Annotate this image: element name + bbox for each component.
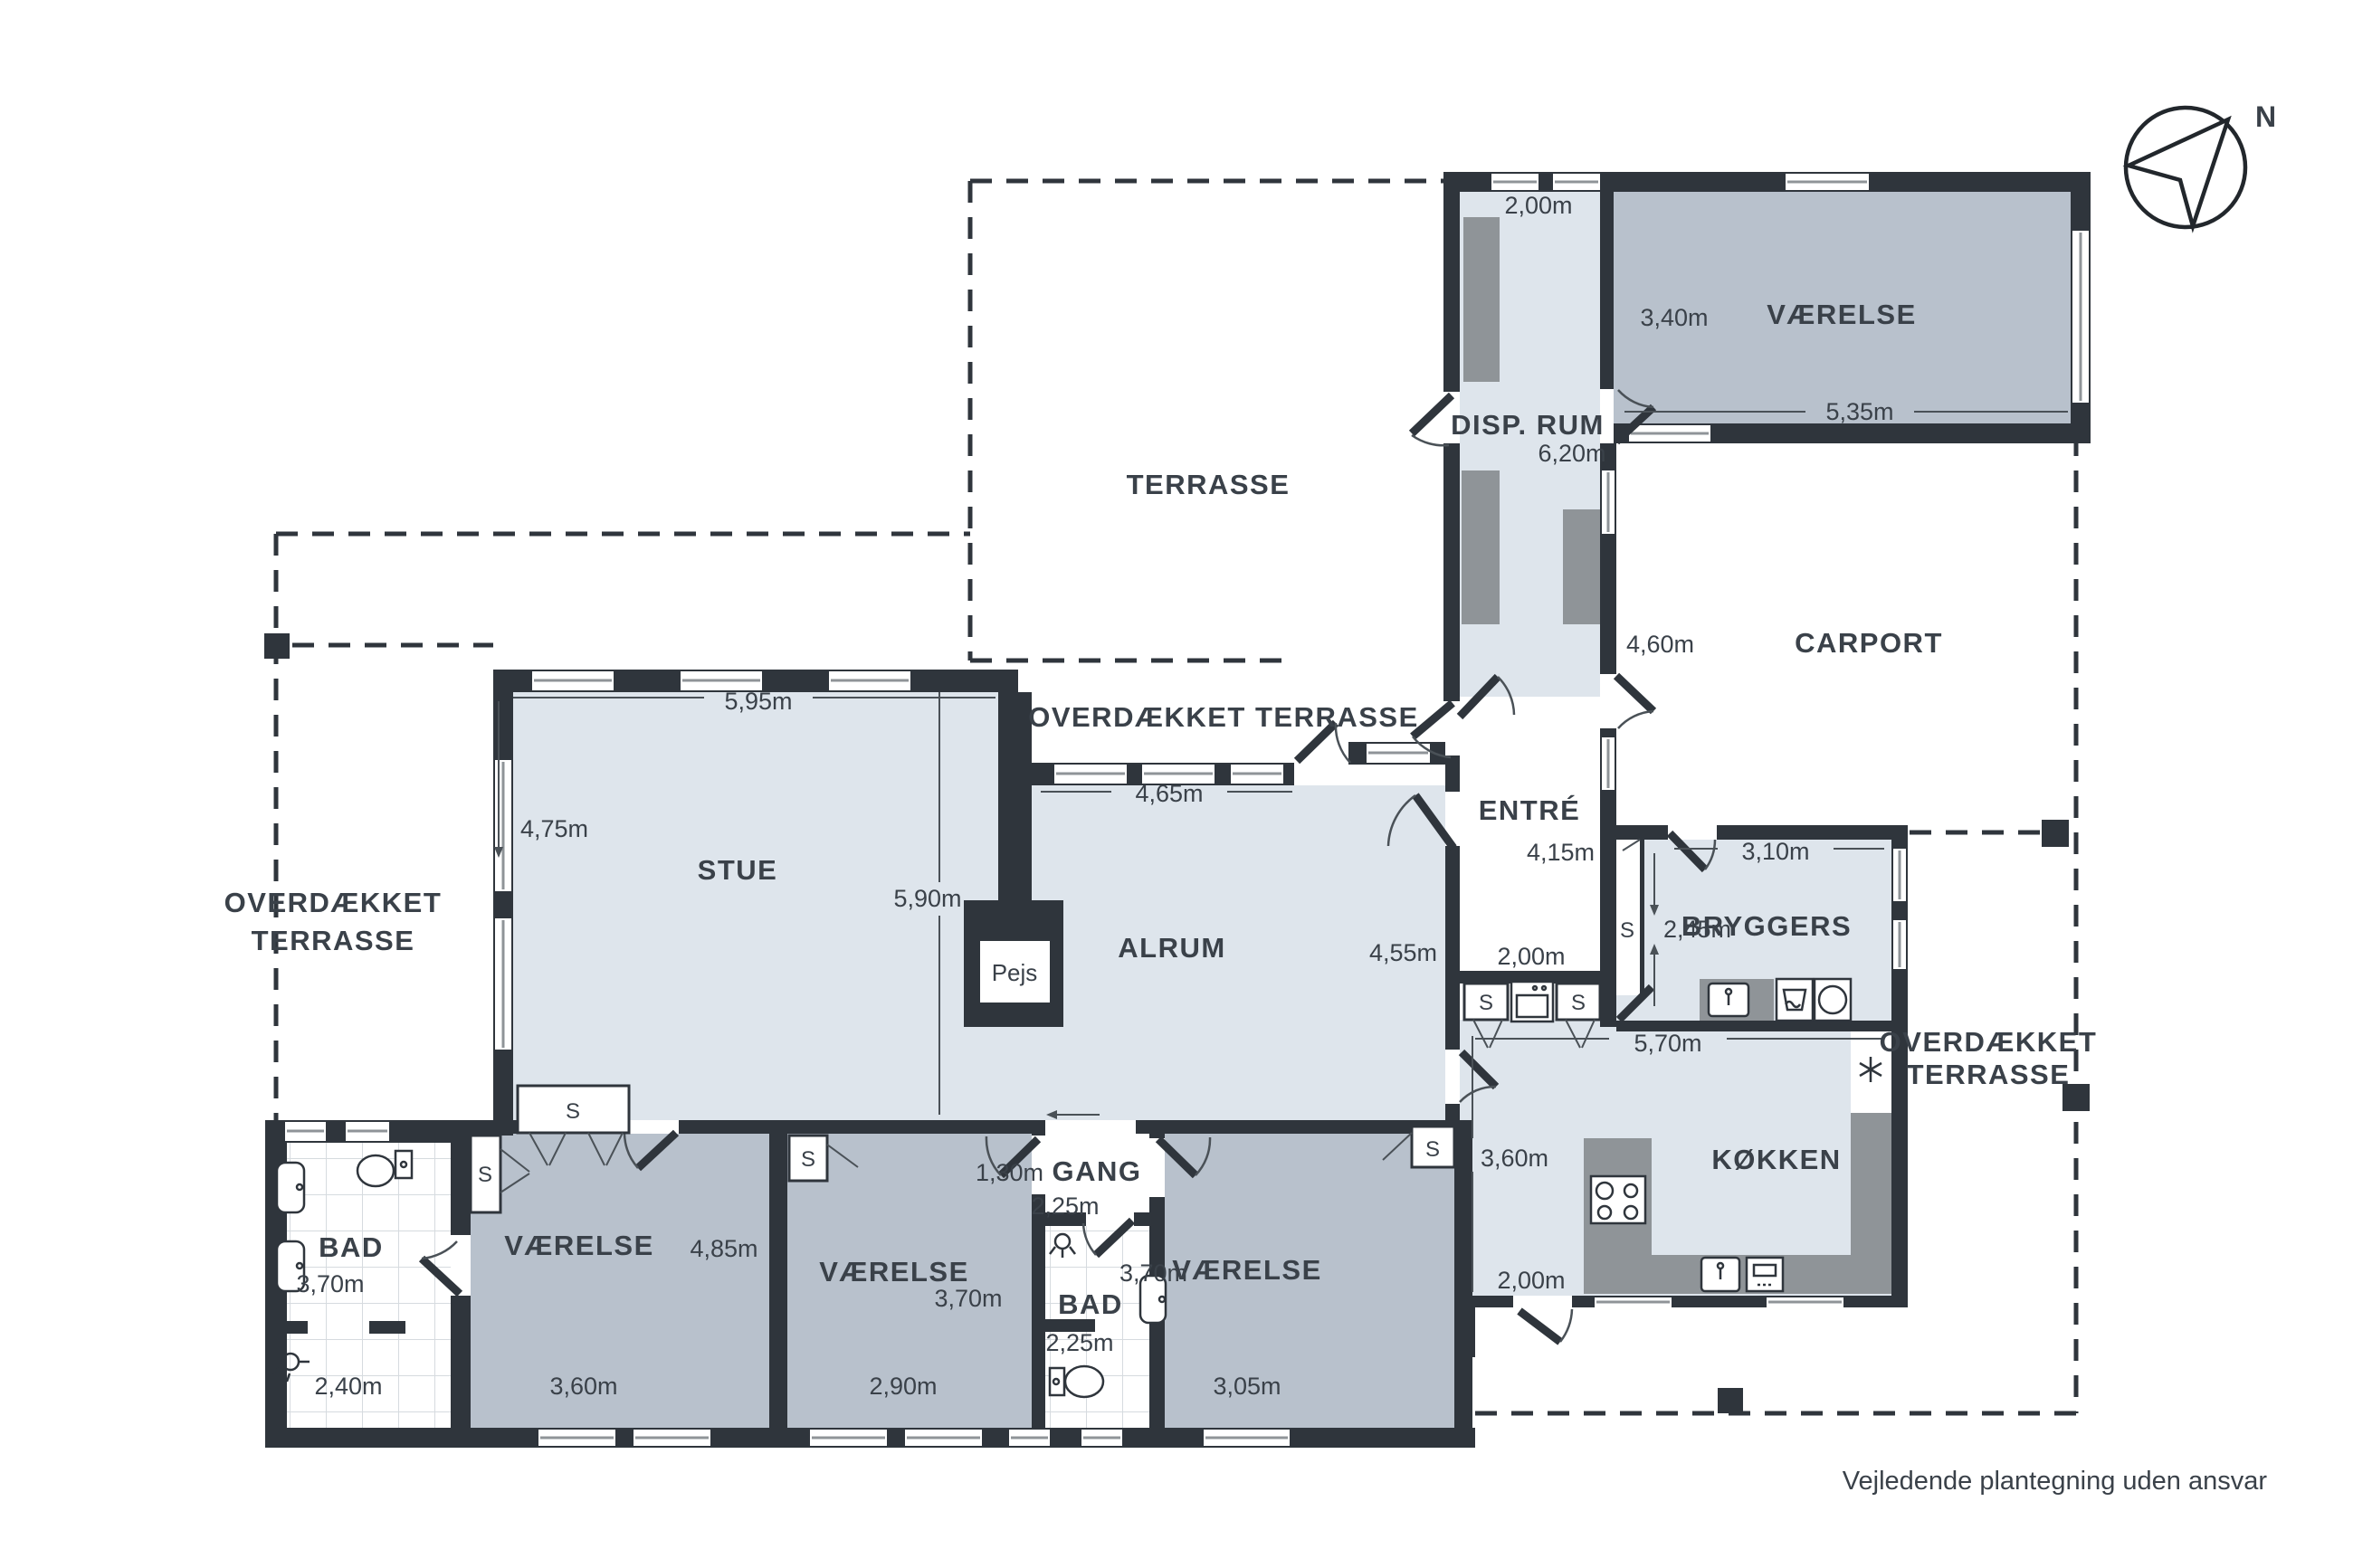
stue-depth: 4,75m <box>520 815 588 842</box>
bad-west-depth: 3,70m <box>296 1270 364 1297</box>
closet-s-v2: S <box>801 1147 815 1172</box>
bad-west-width: 2,40m <box>314 1373 382 1400</box>
dishwasher-icon <box>1747 1258 1783 1291</box>
compass-north-label: N <box>2255 100 2276 133</box>
disp-rum-length: 6,20m <box>1538 440 1605 467</box>
koekken-label: KØKKEN <box>1711 1144 1841 1175</box>
floor-plan-page: N TERRASSE CARPORT OVERDÆKKET TERRASSE O… <box>0 0 2353 1568</box>
vaerelse-sw-label: VÆRELSE <box>504 1230 654 1261</box>
covered-terrace-right-label-1: OVERDÆKKET <box>1880 1026 2098 1058</box>
gang-width: 1,30m <box>976 1159 1043 1186</box>
toilet-tank-icon <box>395 1151 412 1178</box>
vaerelse-mid-label: VÆRELSE <box>819 1256 969 1288</box>
terrasse-label: TERRASSE <box>1127 469 1291 500</box>
gang-depth: 2,25m <box>1031 1193 1099 1220</box>
koekken-depth: 3,60m <box>1481 1145 1548 1172</box>
disp-rum-label: DISP. RUM <box>1451 409 1605 441</box>
compass-rose-icon <box>2126 108 2245 227</box>
closet-s-bryggers: S <box>1620 918 1634 943</box>
entre-length: 4,15m <box>1527 839 1595 866</box>
disp-rum-width: 2,00m <box>1504 192 1572 219</box>
vaerelse-mid-depth: 3,70m <box>934 1285 1002 1312</box>
bryggers-width: 3,10m <box>1741 838 1809 865</box>
carport-label: CARPORT <box>1795 627 1943 659</box>
bad-west-label: BAD <box>319 1231 384 1263</box>
sink-icon <box>277 1163 304 1212</box>
closet-s-v1-top: S <box>566 1099 580 1124</box>
bad-south-width: 2,25m <box>1045 1329 1113 1356</box>
alrum-width: 4,65m <box>1135 780 1203 807</box>
koekken-door-width: 2,00m <box>1497 1267 1565 1294</box>
bryggers-depth: 2,45m <box>1663 916 1731 943</box>
covered-terrace-top-label: OVERDÆKKET TERRASSE <box>1028 701 1419 733</box>
vaerelse-ne-width: 5,35m <box>1825 398 1893 425</box>
washer-icon <box>1777 979 1813 1021</box>
koekken-width: 5,70m <box>1634 1030 1701 1057</box>
closet-s-v3: S <box>1425 1137 1440 1162</box>
vaerelse-ne-label: VÆRELSE <box>1767 299 1917 330</box>
stue-mid-dimension: 5,90m <box>893 885 961 912</box>
vaerelse-mid-width: 2,90m <box>869 1373 937 1400</box>
pejs-label: Pejs <box>992 959 1038 986</box>
toilet-tank-icon <box>1050 1368 1064 1395</box>
entre-width: 2,00m <box>1497 943 1565 970</box>
closet-s-v1-left: S <box>478 1163 492 1187</box>
gang-label: GANG <box>1053 1155 1142 1187</box>
covered-terrace-left-label-2: TERRASSE <box>252 925 415 956</box>
alrum-label: ALRUM <box>1118 932 1225 964</box>
hall-dimension: 4,60m <box>1626 631 1694 658</box>
toilet-bowl-icon <box>1065 1366 1103 1397</box>
vaerelse-se-width: 3,05m <box>1213 1373 1281 1400</box>
vaerelse-sw-width: 3,60m <box>549 1373 617 1400</box>
vaerelse-se-depth: 3,70m <box>1119 1259 1187 1287</box>
entre-label: ENTRÉ <box>1479 794 1581 826</box>
stue-width: 5,95m <box>724 688 792 715</box>
disclaimer-text: Vejledende plantegning uden ansvar <box>1843 1467 2268 1496</box>
vaerelse-sw-depth: 4,85m <box>690 1235 757 1262</box>
toilet-bowl-icon <box>357 1155 394 1186</box>
closet-s-niche-left: S <box>1479 991 1493 1015</box>
vaerelse-ne-depth: 3,40m <box>1640 304 1708 331</box>
covered-terrace-right-label-2: TERRASSE <box>1907 1059 2071 1090</box>
closet-s-niche-right: S <box>1571 991 1586 1015</box>
alrum-depth: 4,55m <box>1369 939 1437 966</box>
stue-label: STUE <box>698 854 778 886</box>
covered-terrace-left-label-1: OVERDÆKKET <box>224 887 443 918</box>
bad-south-label: BAD <box>1058 1288 1123 1320</box>
vaerelse-se-label: VÆRELSE <box>1172 1254 1322 1286</box>
floor-plan-svg: N TERRASSE CARPORT OVERDÆKKET TERRASSE O… <box>0 0 2353 1568</box>
